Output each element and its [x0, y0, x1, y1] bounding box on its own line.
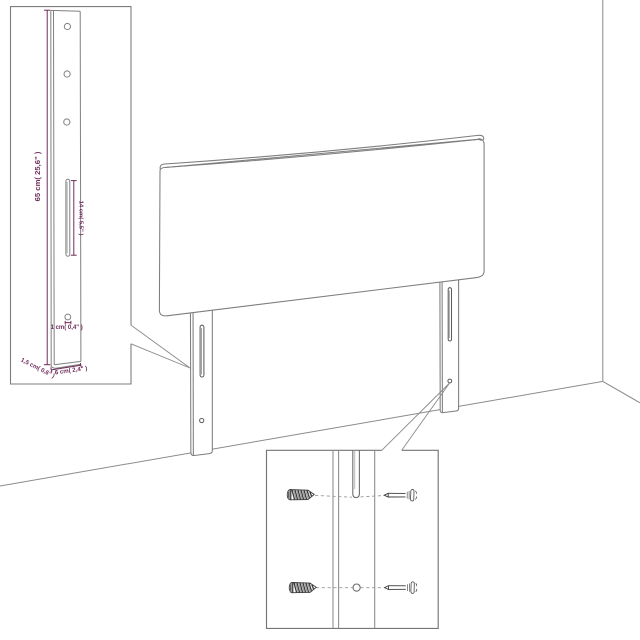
- svg-text:14 cm( 5,5" ): 14 cm( 5,5" ): [77, 201, 83, 236]
- svg-text:65 cm( 25,6" ): 65 cm( 25,6" ): [33, 151, 42, 201]
- svg-text:1 cm( 0,4" ): 1 cm( 0,4" ): [51, 325, 83, 331]
- svg-text:1,5 cm( 0,6" ): 1,5 cm( 0,6" ): [20, 357, 56, 379]
- svg-text:6 cm( 2,4" ): 6 cm( 2,4" ): [54, 365, 87, 376]
